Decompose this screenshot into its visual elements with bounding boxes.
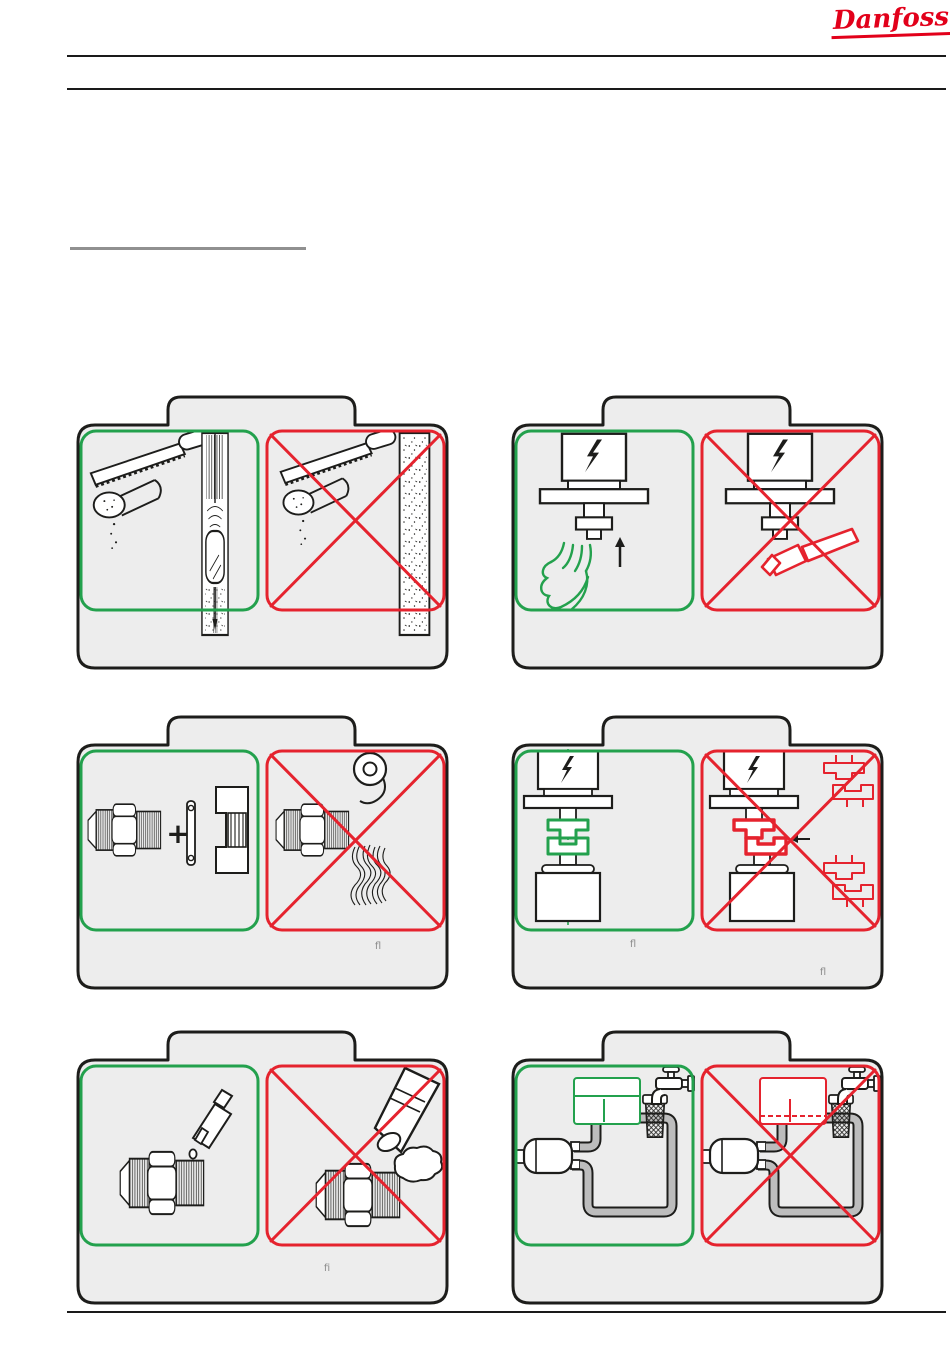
aligned-coupling-icon	[548, 820, 588, 854]
panel-coil-alignment: fl fl	[510, 715, 885, 995]
panel-pipe-cutting	[75, 395, 450, 675]
danfoss-logo: Danfoss	[830, 2, 950, 39]
gasket-icon	[187, 801, 195, 865]
footer-rule	[67, 1311, 946, 1313]
figure-label: fl	[630, 939, 636, 950]
section-title-rule	[70, 247, 306, 250]
flare-fitting-icon	[316, 1164, 399, 1226]
panel-flare-connection: +	[75, 715, 450, 995]
header-rule-bottom	[67, 88, 946, 90]
flare-fitting-icon	[120, 1152, 203, 1214]
water-tank-low-icon	[760, 1078, 826, 1124]
figure-label: fl	[375, 941, 381, 952]
water-tank-icon	[574, 1078, 640, 1124]
dirty-pipe-section-icon	[400, 433, 430, 635]
panel-water-connection	[510, 1030, 885, 1310]
clean-pipe-section-icon	[202, 433, 228, 635]
figure-label: fl	[820, 967, 826, 978]
figure-label: fi	[324, 1263, 330, 1274]
panel-thread-sealant: fi	[75, 1030, 450, 1310]
panel-coil-mounting	[510, 395, 885, 675]
flare-fitting-icon	[88, 804, 161, 856]
filter-drier-icon	[516, 1139, 580, 1173]
oil-drop-icon	[189, 1149, 196, 1158]
flare-fitting-icon	[276, 804, 349, 856]
document-page: Danfoss	[0, 0, 950, 1369]
filter-drier-icon	[702, 1139, 766, 1173]
header-rule-top	[67, 55, 946, 57]
